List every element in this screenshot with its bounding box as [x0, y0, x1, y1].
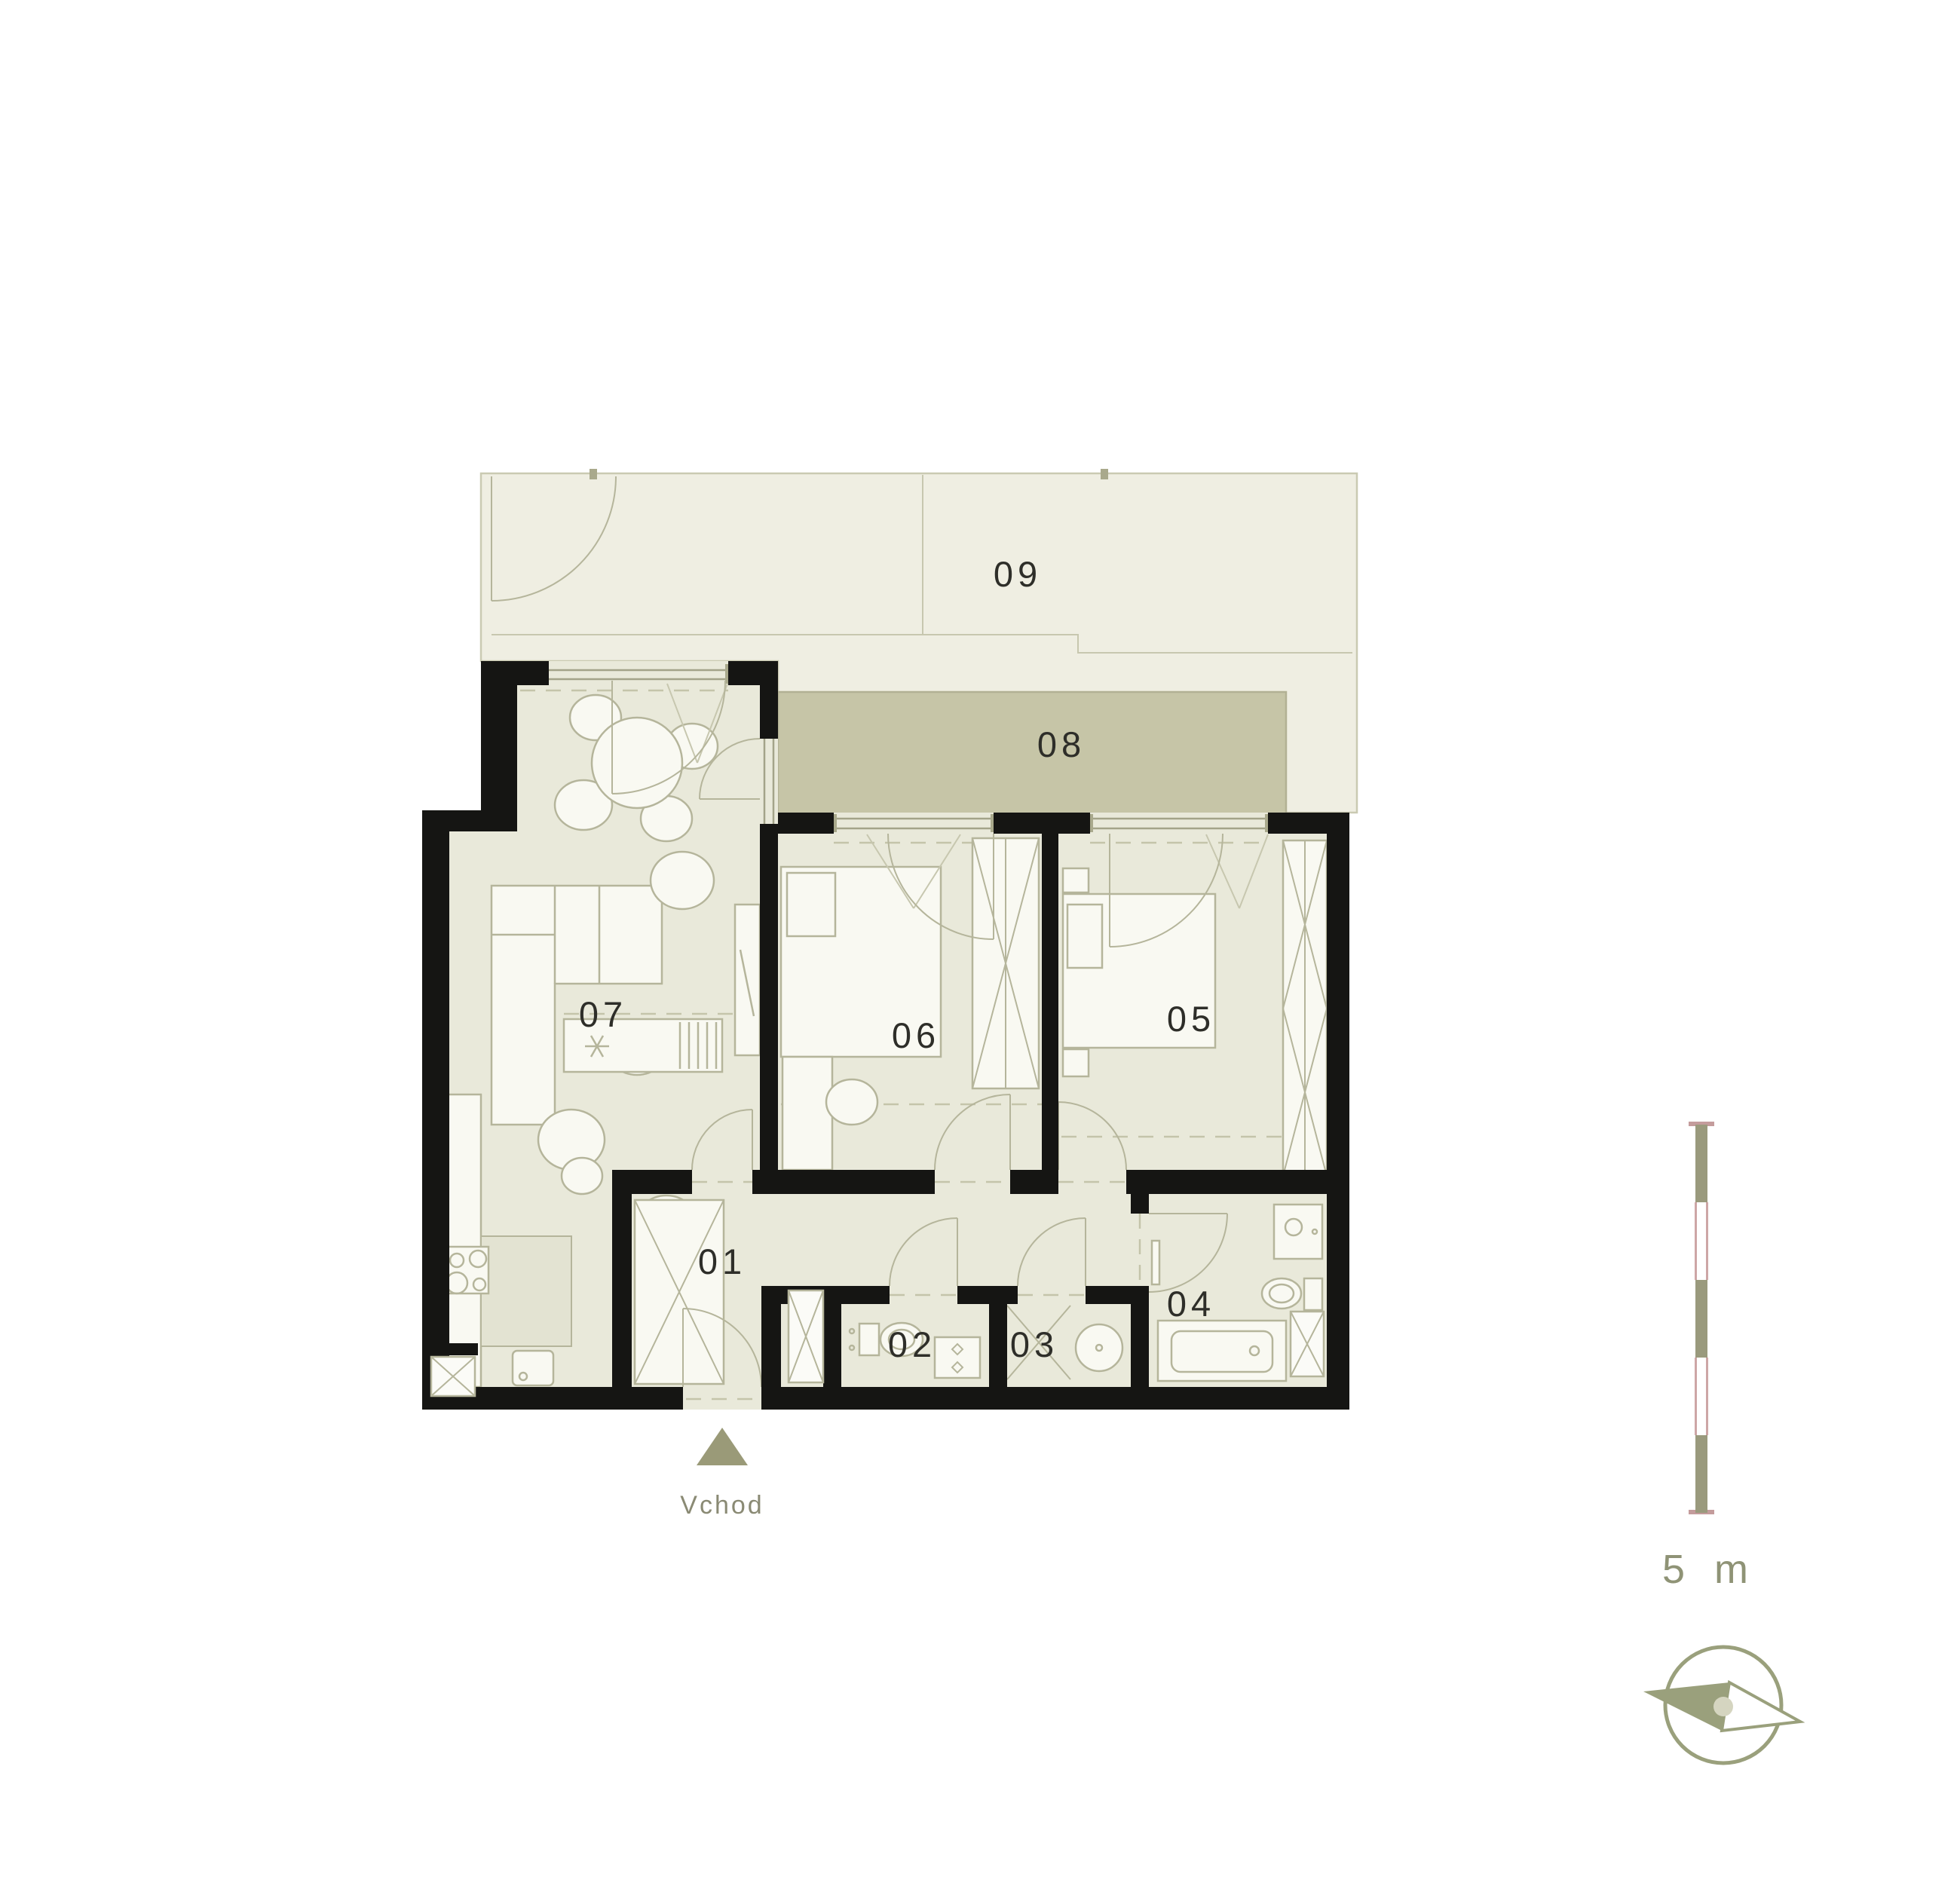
toilet-04	[1262, 1278, 1322, 1310]
hall-closet	[635, 1200, 724, 1384]
entrance-label: Vchod	[680, 1491, 764, 1520]
wardrobe-05	[1283, 840, 1327, 1176]
bed-05	[1063, 868, 1215, 1076]
scale-bar: 5 m	[1662, 1122, 1757, 1592]
room-label-05: 05	[1167, 999, 1215, 1039]
cabinet-02	[935, 1337, 980, 1378]
floor-plan-drawing: 09 08 07 06 05 01 02 03 04 Vchod 5 m	[0, 0, 1960, 1895]
wardrobe-06	[972, 838, 1039, 1088]
entrance-marker: Vchod	[680, 1428, 764, 1520]
room-label-04: 04	[1167, 1284, 1215, 1324]
room-label-07: 07	[579, 994, 627, 1034]
floor-plan-page: 09 08 07 06 05 01 02 03 04 Vchod 5 m	[0, 0, 1960, 1895]
balcony-area	[778, 692, 1286, 818]
room-label-09: 09	[994, 554, 1042, 594]
scale-label: 5 m	[1662, 1547, 1757, 1592]
room-label-02: 02	[888, 1324, 936, 1364]
room-label-08: 08	[1037, 724, 1086, 764]
compass-icon	[1643, 1647, 1800, 1763]
room-label-06: 06	[892, 1015, 940, 1055]
tv-cabinet	[735, 905, 760, 1055]
room-label-03: 03	[1010, 1324, 1058, 1364]
bathtub-04	[1158, 1321, 1286, 1381]
entrance-arrow-icon	[697, 1428, 748, 1465]
room-label-01: 01	[698, 1241, 746, 1281]
